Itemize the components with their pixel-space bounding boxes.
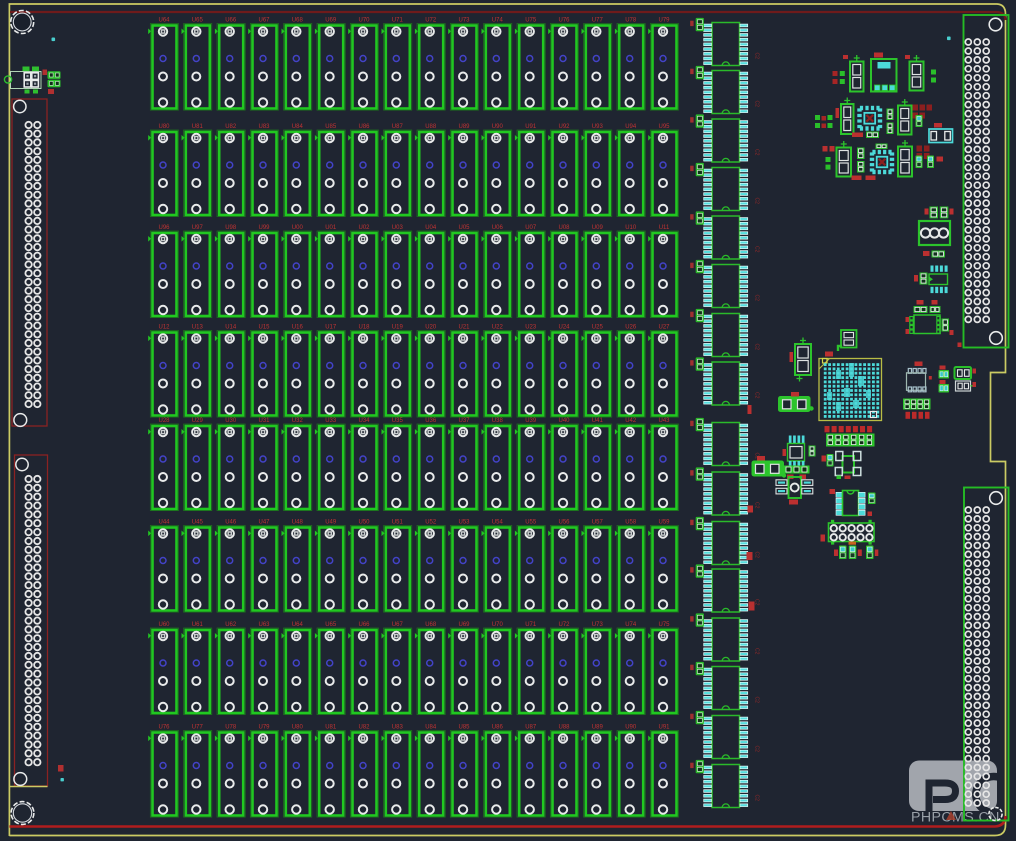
svg-text:U67: U67 [258, 18, 270, 24]
svg-text:U39: U39 [525, 418, 537, 424]
svg-text:U26: U26 [625, 325, 637, 331]
svg-text:U62: U62 [225, 622, 237, 628]
svg-text:U52: U52 [425, 520, 437, 526]
svg-text:U02: U02 [358, 225, 370, 231]
svg-text:U59: U59 [658, 520, 670, 526]
svg-text:U88: U88 [425, 124, 437, 130]
svg-text:U17: U17 [325, 325, 337, 331]
svg-text:U30: U30 [225, 418, 237, 424]
svg-text:U49: U49 [325, 520, 337, 526]
svg-text:U58: U58 [625, 520, 637, 526]
svg-text:U44: U44 [158, 520, 170, 526]
svg-text:U82: U82 [225, 124, 237, 130]
svg-text:U33: U33 [325, 418, 337, 424]
svg-text:U18: U18 [358, 325, 370, 331]
svg-text:U83: U83 [392, 725, 404, 731]
svg-text:U78: U78 [625, 18, 637, 24]
svg-text:U05: U05 [458, 225, 470, 231]
svg-text:U97: U97 [192, 225, 204, 231]
svg-text:U81: U81 [192, 124, 204, 130]
svg-text:U13: U13 [192, 325, 204, 331]
svg-text:U04: U04 [425, 225, 437, 231]
svg-text:U74: U74 [492, 18, 504, 24]
svg-text:U27: U27 [658, 325, 670, 331]
svg-text:U66: U66 [358, 622, 370, 628]
svg-text:U91: U91 [525, 124, 537, 130]
svg-text:U28: U28 [158, 418, 170, 424]
svg-text:U88: U88 [558, 725, 570, 731]
svg-text:U89: U89 [458, 124, 470, 130]
svg-text:U80: U80 [158, 124, 170, 130]
svg-text:U47: U47 [258, 520, 270, 526]
svg-text:U64: U64 [292, 622, 304, 628]
svg-text:U09: U09 [592, 225, 604, 231]
svg-text:U79: U79 [258, 725, 270, 731]
svg-text:U83: U83 [258, 124, 270, 130]
svg-text:U36: U36 [425, 418, 437, 424]
svg-text:U12: U12 [158, 325, 170, 331]
svg-text:U22: U22 [492, 325, 504, 331]
svg-text:U98: U98 [225, 225, 237, 231]
svg-text:U79: U79 [658, 18, 670, 24]
svg-text:U67: U67 [392, 622, 404, 628]
svg-text:U75: U75 [658, 622, 670, 628]
svg-text:U61: U61 [192, 622, 204, 628]
svg-text:U84: U84 [292, 124, 304, 130]
svg-text:U71: U71 [392, 18, 404, 24]
svg-text:U34: U34 [358, 418, 370, 424]
svg-text:U11: U11 [659, 225, 670, 231]
svg-text:U73: U73 [592, 622, 604, 628]
svg-text:U71: U71 [525, 622, 537, 628]
svg-text:U81: U81 [325, 725, 337, 731]
svg-text:U76: U76 [158, 725, 170, 731]
svg-text:U38: U38 [492, 418, 504, 424]
svg-text:U87: U87 [392, 124, 404, 130]
svg-text:U24: U24 [558, 325, 570, 331]
svg-text:U25: U25 [592, 325, 604, 331]
svg-text:U57: U57 [592, 520, 604, 526]
svg-text:U54: U54 [492, 520, 504, 526]
svg-text:U00: U00 [292, 225, 304, 231]
svg-text:U86: U86 [492, 725, 504, 731]
svg-text:U85: U85 [325, 124, 337, 130]
svg-text:U82: U82 [358, 725, 370, 731]
svg-text:U08: U08 [558, 225, 570, 231]
svg-text:U41: U41 [592, 418, 604, 424]
svg-text:U03: U03 [392, 225, 404, 231]
svg-text:U76: U76 [558, 18, 570, 24]
svg-text:U74: U74 [625, 622, 637, 628]
svg-text:U72: U72 [558, 622, 570, 628]
svg-text:U93: U93 [592, 124, 604, 130]
svg-text:U90: U90 [625, 725, 637, 731]
svg-text:U20: U20 [425, 325, 437, 331]
svg-text:U48: U48 [292, 520, 304, 526]
svg-text:U64: U64 [158, 18, 170, 24]
svg-text:U96: U96 [158, 225, 170, 231]
svg-text:U63: U63 [258, 622, 270, 628]
svg-text:U95: U95 [658, 124, 670, 130]
svg-text:U85: U85 [458, 725, 470, 731]
svg-text:U31: U31 [258, 418, 270, 424]
svg-text:U45: U45 [192, 520, 204, 526]
svg-text:U32: U32 [292, 418, 304, 424]
svg-text:U94: U94 [625, 124, 637, 130]
svg-text:U60: U60 [158, 622, 170, 628]
svg-text:U23: U23 [525, 325, 537, 331]
svg-text:U91: U91 [658, 725, 670, 731]
svg-text:U70: U70 [492, 622, 504, 628]
svg-text:U75: U75 [525, 18, 537, 24]
svg-text:U69: U69 [458, 622, 470, 628]
svg-text:U01: U01 [325, 225, 337, 231]
svg-text:U16: U16 [292, 325, 304, 331]
svg-text:U10: U10 [625, 225, 637, 231]
svg-text:U86: U86 [358, 124, 370, 130]
svg-text:U14: U14 [225, 325, 237, 331]
svg-text:U77: U77 [192, 725, 204, 731]
svg-text:U89: U89 [592, 725, 604, 731]
svg-text:U51: U51 [392, 520, 404, 526]
svg-text:U50: U50 [358, 520, 370, 526]
svg-text:U55: U55 [525, 520, 537, 526]
svg-text:U92: U92 [558, 124, 570, 130]
svg-text:U80: U80 [292, 725, 304, 731]
svg-text:U69: U69 [325, 18, 337, 24]
svg-text:U99: U99 [258, 225, 270, 231]
svg-text:U65: U65 [192, 18, 204, 24]
svg-text:PHPCMS.CN: PHPCMS.CN [911, 810, 1000, 826]
svg-text:U68: U68 [292, 18, 304, 24]
svg-text:U66: U66 [225, 18, 237, 24]
svg-text:U77: U77 [592, 18, 604, 24]
svg-text:U68: U68 [425, 622, 437, 628]
svg-text:U53: U53 [458, 520, 470, 526]
svg-text:U29: U29 [192, 418, 204, 424]
svg-text:U90: U90 [492, 124, 504, 130]
svg-text:U78: U78 [225, 725, 237, 731]
svg-text:U15: U15 [258, 325, 270, 331]
svg-text:U87: U87 [525, 725, 537, 731]
svg-text:U56: U56 [558, 520, 570, 526]
svg-text:U37: U37 [458, 418, 470, 424]
svg-text:U70: U70 [358, 18, 370, 24]
svg-text:U07: U07 [525, 225, 537, 231]
svg-text:U19: U19 [392, 325, 404, 331]
svg-text:U35: U35 [392, 418, 404, 424]
svg-text:U65: U65 [325, 622, 337, 628]
svg-text:U21: U21 [458, 325, 470, 331]
svg-text:U42: U42 [625, 418, 637, 424]
svg-text:U40: U40 [558, 418, 570, 424]
svg-text:U84: U84 [425, 725, 437, 731]
svg-text:U43: U43 [658, 418, 670, 424]
svg-text:U72: U72 [425, 18, 437, 24]
svg-text:U06: U06 [492, 225, 504, 231]
svg-text:U46: U46 [225, 520, 237, 526]
svg-text:U73: U73 [458, 18, 470, 24]
